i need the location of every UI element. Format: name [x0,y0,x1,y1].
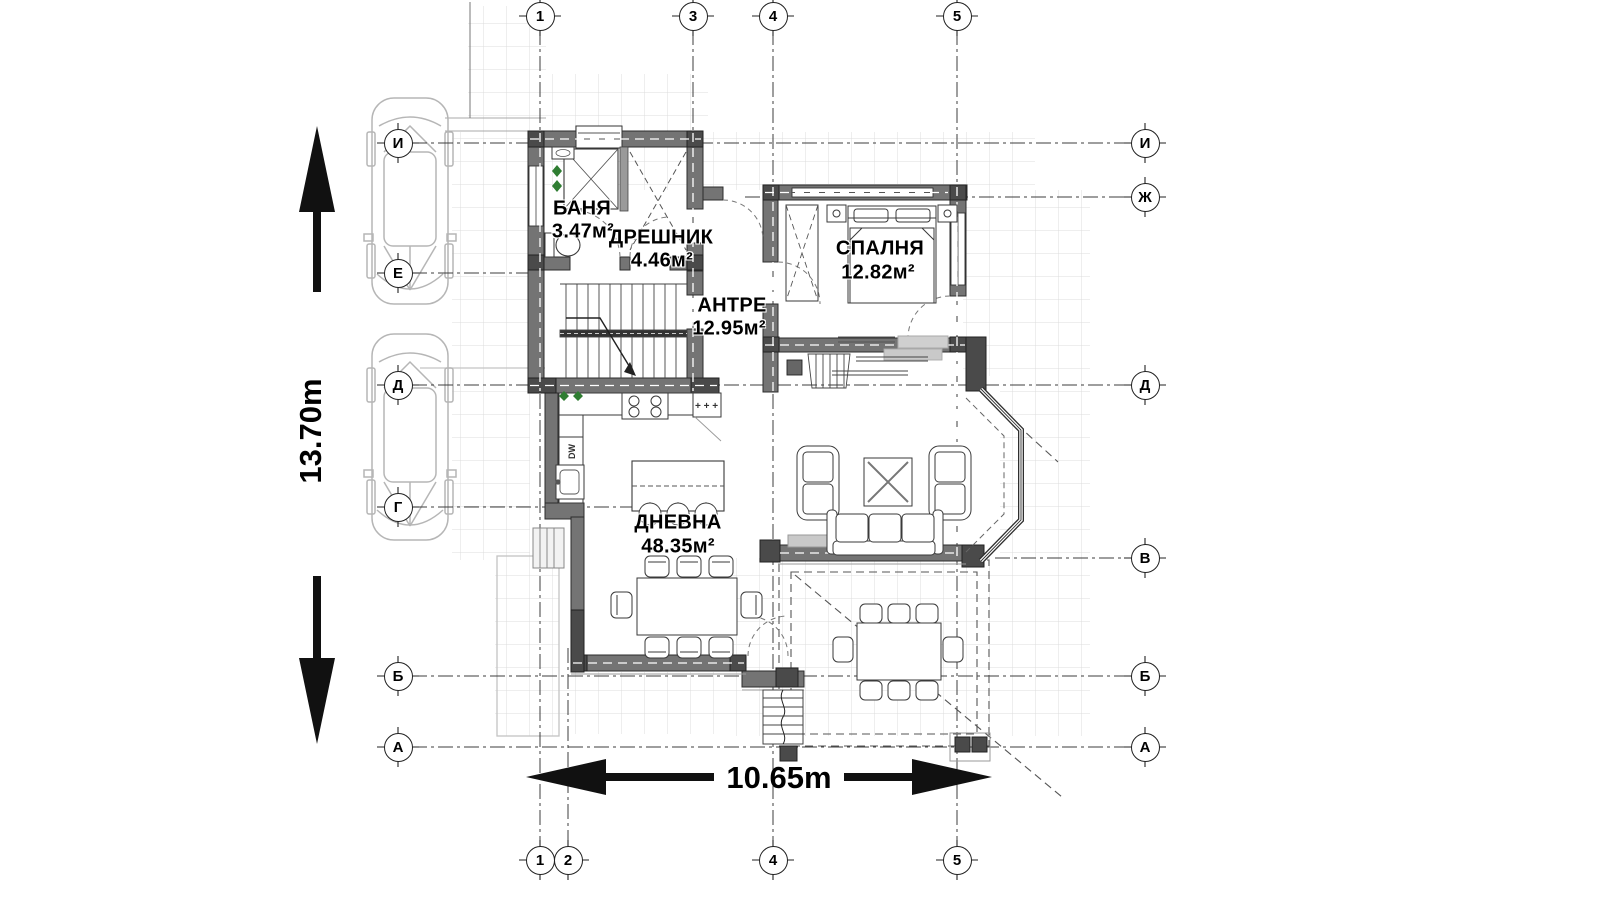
main-staircase [560,284,687,378]
room-label-banya: БАНЯ [553,198,611,221]
axis-marker-top-3: 3 [679,2,708,31]
armchair-left [797,446,839,520]
axis-marker-right-a: А [1131,733,1160,762]
side-steps [533,528,564,568]
axis-marker-top-5: 5 [943,2,972,31]
area-label-dnevna: 48.35м² [641,536,715,559]
dimension-height: 13.70m [293,378,329,483]
area-label-banya: 3.47м² [552,221,614,244]
axis-marker-bottom-1: 1 [526,846,555,875]
axis-marker-right-d: Д [1131,371,1160,400]
armchair-right [929,446,971,520]
dishwasher-label: DW [567,444,577,459]
washbasin [552,147,574,159]
axis-marker-right-i: И [1131,129,1160,158]
area-label-antre: 12.95м² [692,318,766,341]
fridge-marks: + + + [695,401,718,412]
axis-marker-bottom-5: 5 [943,846,972,875]
room-label-antre: АНТРЕ [697,295,766,318]
kitchen-stove [622,393,668,419]
axis-marker-bottom-4: 4 [759,846,788,875]
area-label-dreshnik: 4.46м² [631,250,693,273]
arrow-down [299,658,335,744]
doormat [898,336,948,348]
room-label-dreshnik: ДРЕШНИК [609,227,713,250]
axis-marker-top-4: 4 [759,2,788,31]
arrow-up [299,126,335,212]
axis-marker-top-1: 1 [526,2,555,31]
axis-marker-left-b: Б [384,662,413,691]
room-label-spalnya: СПАЛНЯ [836,238,924,261]
axis-marker-right-b: Б [1131,662,1160,691]
corridor-niche [787,349,942,388]
room-label-dnevna: ДНЕВНА [634,512,721,535]
arrow-left [526,759,606,795]
outdoor-table [857,623,941,680]
axis-marker-right-v: В [1131,544,1160,573]
entry-steps [763,690,803,744]
nightstand-right [938,205,957,222]
floor-plan-page: DW + + + БАНЯ 3.47м² ДРЕШНИК 4.46м² АНТР… [0,0,1600,900]
sofa [827,510,943,555]
axis-marker-right-zh: Ж [1131,183,1160,212]
axis-marker-left-d: Д [384,371,413,400]
axis-marker-left-i: И [384,129,413,158]
arrow-right [912,759,992,795]
bench [884,349,942,360]
axis-marker-left-e: Е [384,259,413,288]
bath-partition [620,147,628,211]
axis-marker-left-a: А [384,733,413,762]
wardrobe [786,205,818,301]
area-label-spalnya: 12.82м² [841,262,915,285]
axis-marker-left-g: Г [384,493,413,522]
coffee-table [864,458,912,506]
parked-cars [364,98,456,540]
sofa-set [788,446,971,555]
axis-marker-bottom-2: 2 [554,846,583,875]
dimension-width: 10.65m [726,760,831,796]
dining-table [637,578,737,635]
nightstand-left [827,205,846,222]
